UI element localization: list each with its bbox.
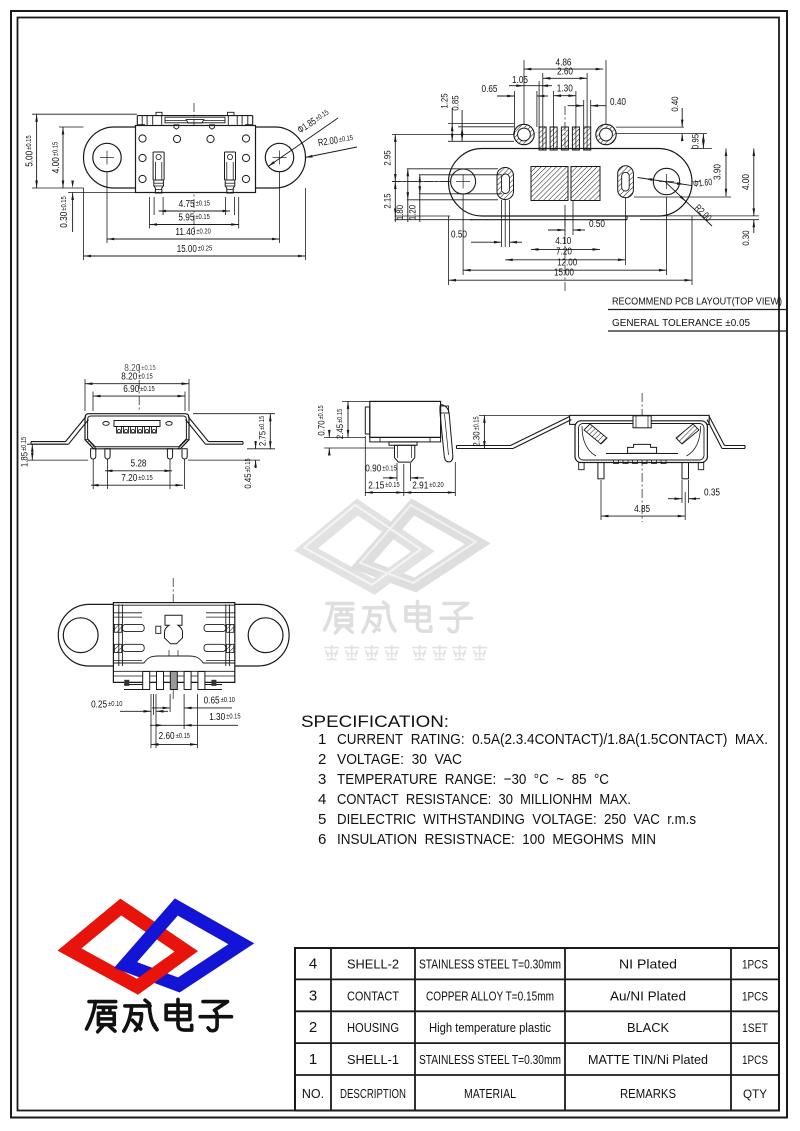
svg-text:7.20: 7.20 <box>556 247 572 258</box>
svg-text:NI Plated: NI Plated <box>619 957 677 972</box>
svg-text:SHELL-2: SHELL-2 <box>347 957 399 972</box>
svg-text:5.95: 5.95 <box>178 212 194 223</box>
svg-text:2.75: 2.75 <box>257 431 268 446</box>
svg-text:±0.15: ±0.15 <box>195 212 209 221</box>
svg-text:1SET: 1SET <box>742 1023 768 1035</box>
svg-text:STAINLESS STEEL T=0.30mm: STAINLESS STEEL T=0.30mm <box>419 1052 561 1067</box>
svg-text:2.30: 2.30 <box>472 431 483 446</box>
svg-text:±0.20: ±0.20 <box>196 227 210 236</box>
svg-text:4.85: 4.85 <box>634 504 650 515</box>
svg-text:SHELL-1: SHELL-1 <box>347 1052 399 1067</box>
svg-text:3.90: 3.90 <box>713 164 724 180</box>
svg-text:2.95: 2.95 <box>382 150 393 165</box>
svg-text:Φ1.60: Φ1.60 <box>693 177 713 190</box>
svg-text:4.00: 4.00 <box>741 174 752 190</box>
svg-text:±0.25: ±0.25 <box>198 244 212 253</box>
svg-text:0.95: 0.95 <box>690 134 701 149</box>
svg-text:0.40: 0.40 <box>670 96 681 111</box>
svg-text:1.30: 1.30 <box>209 712 225 723</box>
svg-text:1: 1 <box>309 1051 317 1068</box>
svg-text:±0.15: ±0.15 <box>24 135 33 149</box>
svg-text:0.30: 0.30 <box>741 230 752 245</box>
svg-text:High temperature plastic: High temperature plastic <box>429 1020 551 1035</box>
svg-text:0.65: 0.65 <box>482 84 498 95</box>
svg-text:0.50: 0.50 <box>589 219 605 230</box>
svg-text:6: 6 <box>318 831 326 848</box>
svg-text:±0.15: ±0.15 <box>196 199 210 208</box>
svg-text:1.85: 1.85 <box>19 452 30 467</box>
svg-text:4: 4 <box>318 791 326 808</box>
svg-text:0.65: 0.65 <box>204 695 220 706</box>
svg-text:±0.15: ±0.15 <box>59 196 68 210</box>
svg-text:5: 5 <box>318 811 326 828</box>
svg-text:0.30: 0.30 <box>59 211 70 227</box>
svg-text:MATERIAL: MATERIAL <box>464 1086 516 1101</box>
svg-text:1PCS: 1PCS <box>742 960 768 972</box>
svg-text:1.80: 1.80 <box>395 205 406 220</box>
svg-text:0.25: 0.25 <box>91 699 107 710</box>
svg-text:±0.15: ±0.15 <box>138 473 152 482</box>
svg-text:RECOMMEND PCB LAYOUT(TOP VIEW): RECOMMEND PCB LAYOUT(TOP VIEW) <box>612 296 782 308</box>
svg-text:2: 2 <box>309 1019 317 1036</box>
svg-text:1PCS: 1PCS <box>742 991 768 1003</box>
svg-text:1.05: 1.05 <box>512 75 528 86</box>
svg-text:NO.: NO. <box>302 1087 324 1101</box>
svg-text:REMARKS: REMARKS <box>620 1086 676 1101</box>
svg-text:5.28: 5.28 <box>131 459 147 470</box>
svg-text:CONTACT: CONTACT <box>347 988 399 1003</box>
svg-text:±0.20: ±0.20 <box>429 480 443 489</box>
svg-text:3: 3 <box>318 771 326 788</box>
svg-text:2.60: 2.60 <box>557 66 573 77</box>
svg-text:2.15: 2.15 <box>382 193 393 208</box>
svg-text:CURRENT RATING: 0.5A(2.3.4CO: CURRENT RATING: 0.5A(2.3.4CONTACT)/1.8A(… <box>337 731 768 748</box>
svg-text:5.00: 5.00 <box>24 150 35 166</box>
svg-text:GENERAL TOLERANCE ±0.05: GENERAL TOLERANCE ±0.05 <box>612 317 750 329</box>
svg-text:INSULATION RESISTNACE: 100: INSULATION RESISTNACE: 100 MEGOHMS MIN <box>337 831 656 848</box>
svg-text:TEMPERATURE RANGE: −30 °C: TEMPERATURE RANGE: −30 °C ~ 85 °C <box>337 771 609 788</box>
svg-text:±0.15: ±0.15 <box>259 416 266 430</box>
svg-text:±0.15: ±0.15 <box>51 142 60 156</box>
svg-text:±0.15: ±0.15 <box>140 384 154 393</box>
svg-text:SPECIFICATION:: SPECIFICATION: <box>301 713 449 731</box>
svg-text:1.30: 1.30 <box>557 84 573 95</box>
svg-text:±0.15: ±0.15 <box>138 371 152 380</box>
svg-text:MATTE TIN/Ni Plated: MATTE TIN/Ni Plated <box>588 1052 708 1067</box>
svg-text:15.00: 15.00 <box>177 244 197 255</box>
svg-text:±0.15: ±0.15 <box>176 731 190 740</box>
svg-text:±0.15: ±0.15 <box>318 405 325 419</box>
svg-text:4.00: 4.00 <box>51 157 62 173</box>
svg-text:0.45: 0.45 <box>243 473 254 488</box>
svg-text:±0.15: ±0.15 <box>226 712 240 721</box>
svg-text:VOLTAGE: 30 VAC: VOLTAGE: 30 VAC <box>337 751 462 768</box>
svg-text:7.20: 7.20 <box>121 473 137 484</box>
svg-text:QTY: QTY <box>743 1089 767 1101</box>
svg-text:0.40: 0.40 <box>610 97 626 108</box>
svg-text:DESCRIPTION: DESCRIPTION <box>340 1086 406 1101</box>
svg-text:2.91: 2.91 <box>412 480 428 491</box>
svg-text:15.00: 15.00 <box>554 267 574 278</box>
svg-text:0.50: 0.50 <box>451 230 467 241</box>
svg-text:4.75: 4.75 <box>179 199 195 210</box>
svg-text:±0.15: ±0.15 <box>473 416 480 430</box>
svg-text:2.45: 2.45 <box>335 424 346 439</box>
svg-text:±0.15: ±0.15 <box>382 463 396 472</box>
svg-text:1.20: 1.20 <box>407 205 418 220</box>
svg-text:±0.15: ±0.15 <box>245 458 252 472</box>
svg-text:4.10: 4.10 <box>555 236 571 247</box>
svg-text:±0.15: ±0.15 <box>385 480 399 489</box>
svg-text:±0.10: ±0.10 <box>221 695 235 704</box>
svg-text:DIELECTRIC WITHSTANDING VOLT: DIELECTRIC WITHSTANDING VOLTAGE: 250 VAC… <box>337 811 696 828</box>
svg-text:2.60: 2.60 <box>159 731 175 742</box>
svg-text:4: 4 <box>309 956 317 973</box>
svg-text:0.90: 0.90 <box>365 464 381 475</box>
svg-text:±0.10: ±0.10 <box>108 699 122 708</box>
svg-text:Au/NI Plated: Au/NI Plated <box>610 988 686 1003</box>
svg-text:0.35: 0.35 <box>704 488 720 499</box>
svg-text:0.85: 0.85 <box>451 95 462 110</box>
svg-text:1: 1 <box>318 731 326 748</box>
svg-text:COPPER ALLOY T=0.15mm: COPPER ALLOY T=0.15mm <box>426 988 554 1003</box>
svg-text:6.90: 6.90 <box>123 384 139 395</box>
svg-text:STAINLESS STEEL T=0.30mm: STAINLESS STEEL T=0.30mm <box>419 957 561 972</box>
svg-text:0.70: 0.70 <box>316 420 327 435</box>
svg-text:CONTACT RESISTANCE: 30 MILL: CONTACT RESISTANCE: 30 MILLIONHM MAX. <box>337 791 631 808</box>
svg-text:BLACK: BLACK <box>627 1020 669 1035</box>
svg-text:1PCS: 1PCS <box>742 1055 768 1067</box>
svg-text:2.15: 2.15 <box>368 480 384 491</box>
svg-text:3: 3 <box>309 987 317 1004</box>
svg-text:1.25: 1.25 <box>439 93 450 108</box>
svg-text:8.20: 8.20 <box>121 372 137 383</box>
svg-text:±0.15: ±0.15 <box>21 437 28 451</box>
svg-text:2: 2 <box>318 751 326 768</box>
svg-text:±0.15: ±0.15 <box>337 409 344 423</box>
svg-text:11.40: 11.40 <box>175 227 195 238</box>
svg-text:HOUSING: HOUSING <box>347 1020 399 1035</box>
